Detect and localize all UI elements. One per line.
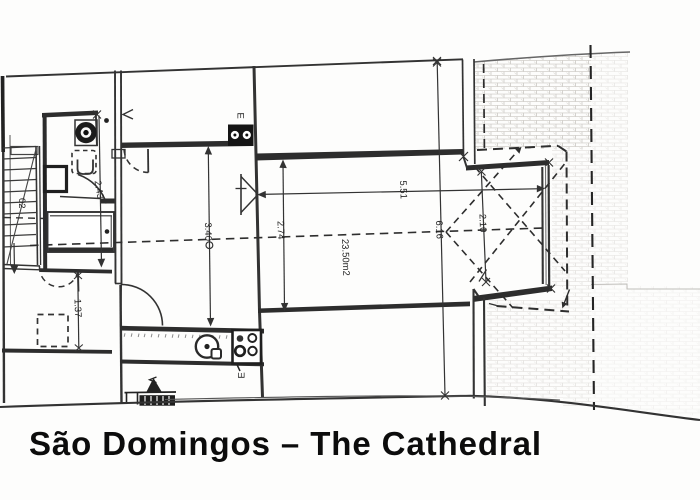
svg-text:02: 02 [16,198,27,209]
svg-text:E: E [235,113,246,119]
svg-text:2.74: 2.74 [275,221,287,240]
svg-text:23.50m2: 23.50m2 [339,239,351,276]
svg-text:5.51: 5.51 [397,180,409,199]
svg-text:1.37: 1.37 [72,299,84,318]
svg-text:2.43: 2.43 [92,180,106,200]
svg-text:6.16: 6.16 [433,220,445,239]
svg-text:3.40: 3.40 [202,222,213,241]
svg-text:2.10: 2.10 [477,214,489,233]
svg-text:E: E [237,372,248,378]
